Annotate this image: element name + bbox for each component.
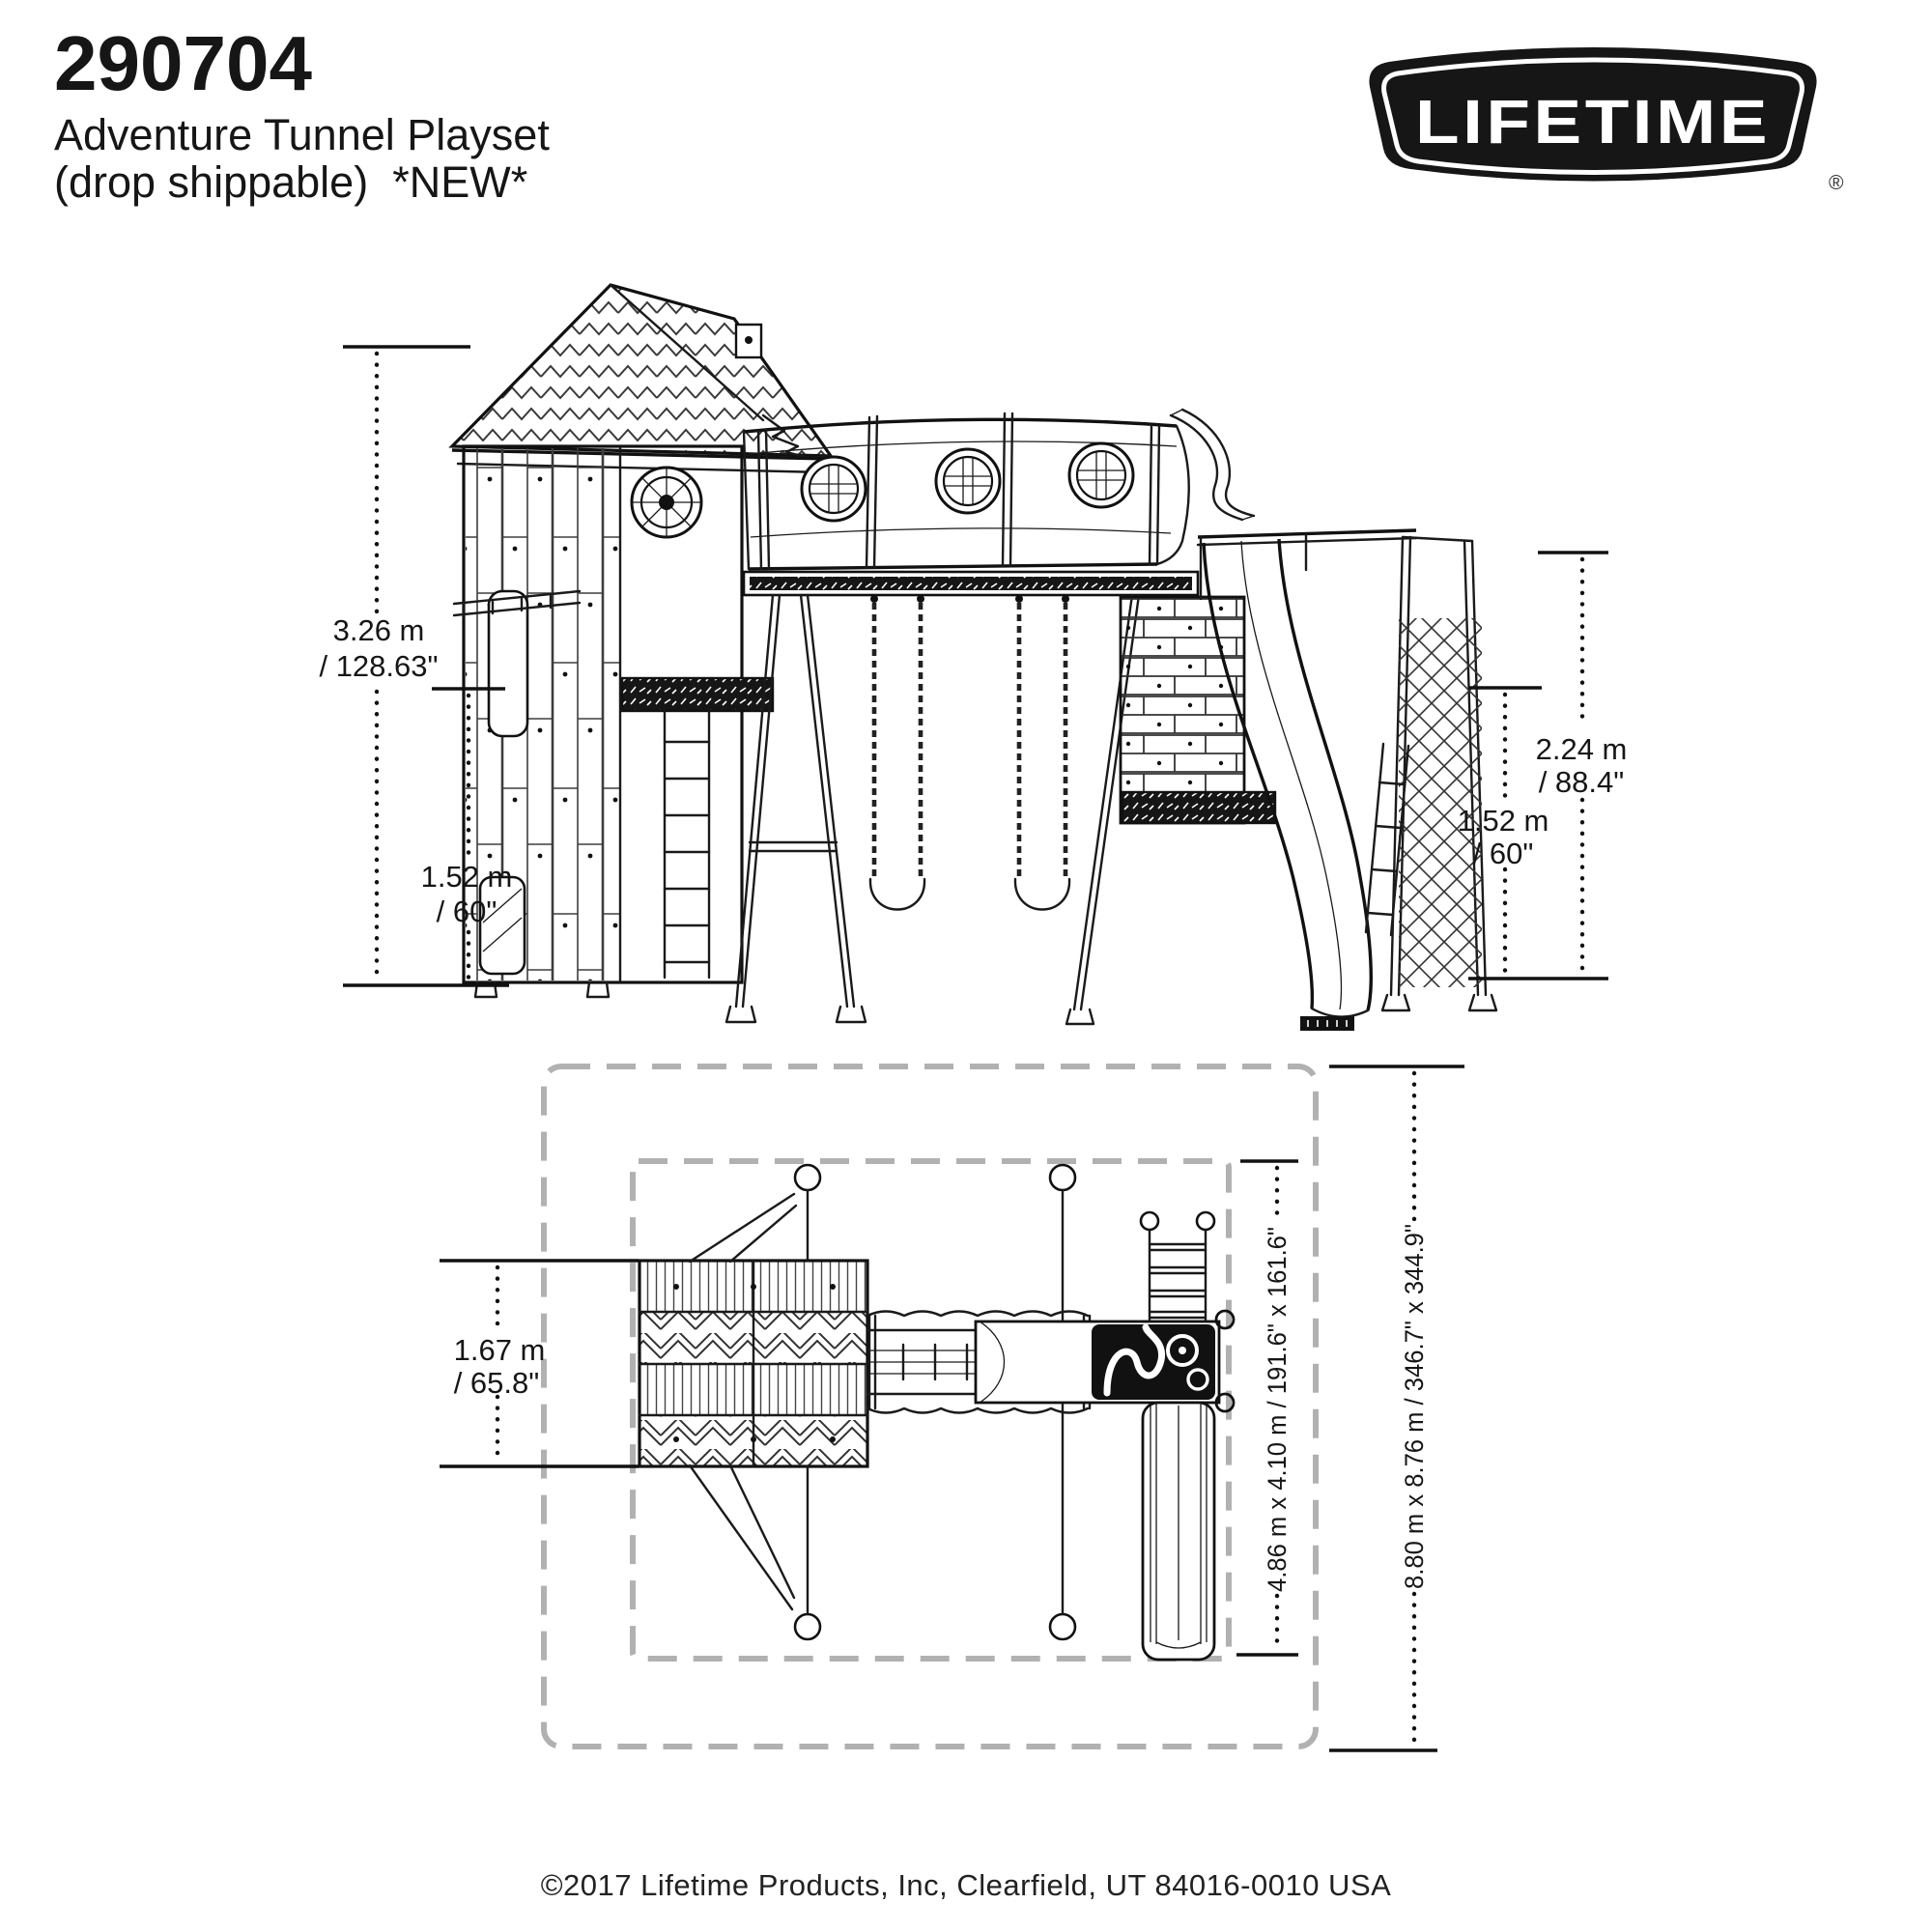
left-deck: [622, 678, 773, 711]
dim-right-deck-imperial: / 60": [1473, 837, 1534, 870]
brick-climbing-wall: [1121, 597, 1244, 823]
swing-seat-1: [870, 879, 924, 910]
dim-left-deck-imperial: / 60": [437, 895, 497, 928]
dim-total-height-imperial: / 128.63": [319, 649, 438, 683]
plan-roof: [639, 1261, 867, 1466]
plan-slide: [1143, 1403, 1214, 1660]
lifetime-logo: LIFETIME ®: [1369, 47, 1844, 194]
dim-swing-beam-metric: 2.24 m: [1536, 732, 1628, 766]
dim-total-height-metric: 3.26 m: [333, 613, 425, 647]
dim-unit-footprint: 4.86 m x 4.10 m / 191.6" x 161.6": [1263, 1227, 1292, 1592]
porthole-window-1: [802, 457, 866, 521]
logo-brand-text: LIFETIME: [1415, 87, 1771, 156]
climbing-net: [1399, 618, 1482, 987]
clubhouse-tower: [454, 446, 773, 997]
steering-wheel: [632, 468, 701, 537]
dim-roof-depth-imperial: / 65.8": [454, 1366, 540, 1400]
dim-safety-zone: 8.80 m x 8.76 m / 346.7" x 344.9": [1400, 1224, 1429, 1589]
porthole-window-3: [1069, 443, 1133, 507]
cargo-net-tower: [1366, 537, 1496, 1010]
left-a-frame: [726, 595, 866, 1022]
dim-right-deck-metric: 1.52 m: [1458, 804, 1549, 838]
dim-swing-beam-imperial: / 88.4": [1539, 765, 1625, 799]
top-view-drawing: [544, 1066, 1316, 1747]
top-view-dimensions: 1.67 m / 65.8" 4.86 m x 4.10 m / 191.6" …: [440, 1066, 1464, 1750]
swings: [870, 595, 1069, 910]
plan-deck-and-panel: [976, 1311, 1234, 1411]
spec-sheet-page: 290704 Adventure Tunnel Playset (drop sh…: [0, 0, 1932, 1932]
clubhouse-roof: [452, 285, 831, 472]
registered-trademark: ®: [1829, 172, 1844, 194]
porthole-window-2: [936, 449, 1000, 513]
plan-ladder: [1141, 1212, 1214, 1321]
right-deck: [1122, 792, 1275, 823]
diagram-canvas: LIFETIME ®: [0, 0, 1932, 1932]
swing-seat-2: [1015, 879, 1069, 910]
dim-roof-depth-metric: 1.67 m: [454, 1333, 546, 1367]
copyright-line: ©2017 Lifetime Products, Inc, Clearfield…: [0, 1868, 1932, 1903]
side-view-drawing: [452, 285, 1496, 1031]
dim-left-deck-metric: 1.52 m: [421, 860, 513, 894]
